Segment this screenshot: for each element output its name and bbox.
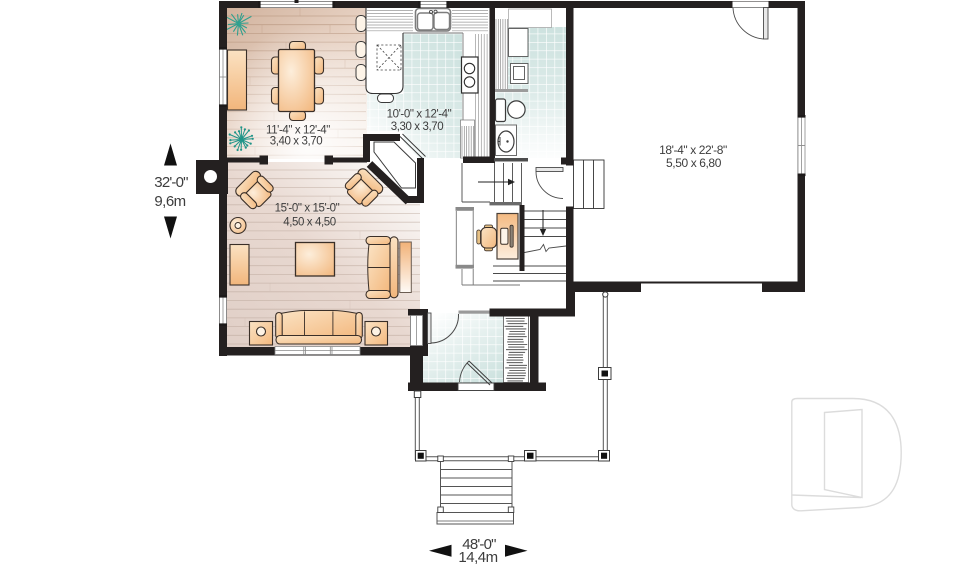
svg-text:4,50 x 4,50: 4,50 x 4,50 (283, 217, 336, 229)
svg-text:10'-0" x 12'-4": 10'-0" x 12'-4" (387, 109, 452, 121)
svg-text:9,6m: 9,6m (154, 193, 185, 210)
svg-text:32'-0": 32'-0" (154, 174, 188, 191)
svg-text:15'-0" x 15'-0": 15'-0" x 15'-0" (275, 203, 340, 215)
svg-text:3,40 x 3,70: 3,40 x 3,70 (270, 136, 323, 148)
svg-text:3,30 x 3,70: 3,30 x 3,70 (391, 121, 444, 133)
svg-text:18'-4" x 22'-8": 18'-4" x 22'-8" (659, 143, 727, 157)
svg-text:14,4m: 14,4m (458, 549, 497, 566)
svg-text:5,50 x 6,80: 5,50 x 6,80 (666, 156, 722, 170)
